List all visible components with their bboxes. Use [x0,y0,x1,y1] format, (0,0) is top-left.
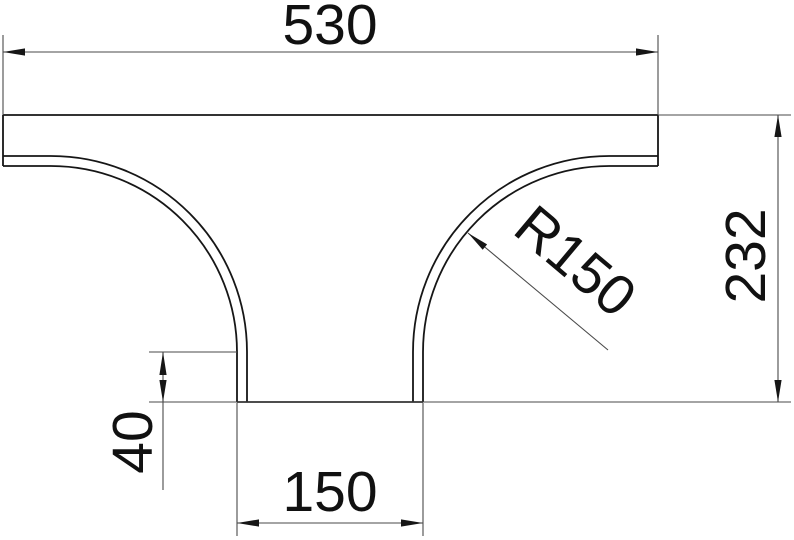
arrowhead-up [774,115,781,137]
tee-piece-dimension-drawing: 530 232 40 150 [0,0,794,540]
arrowhead-up [159,352,166,375]
branch-width-label: 150 [282,460,377,524]
part-left-rim-line [3,156,247,402]
overall-width-label: 530 [282,0,377,57]
arrowhead-right [401,519,423,526]
dimension-branch-width: 150 [237,403,423,536]
dimension-bend-radius: R150 [468,193,648,350]
arrowhead-down [774,380,781,402]
branch-stub-length-label: 40 [101,410,165,473]
dimension-overall-height: 232 [149,115,791,402]
arrowhead-right [636,48,658,55]
arrowhead-left [237,519,259,526]
dimension-branch-stub: 40 [101,352,237,490]
arrowhead-down [159,380,166,402]
technical-drawing-canvas: 530 232 40 150 [0,0,794,540]
overall-height-label: 232 [714,208,778,303]
bend-radius-label: R150 [502,193,648,330]
part-left-outer-contour [3,166,237,402]
arrowhead-left [3,48,25,55]
arrowhead-radius [468,233,487,250]
dimension-overall-width: 530 [3,0,658,115]
